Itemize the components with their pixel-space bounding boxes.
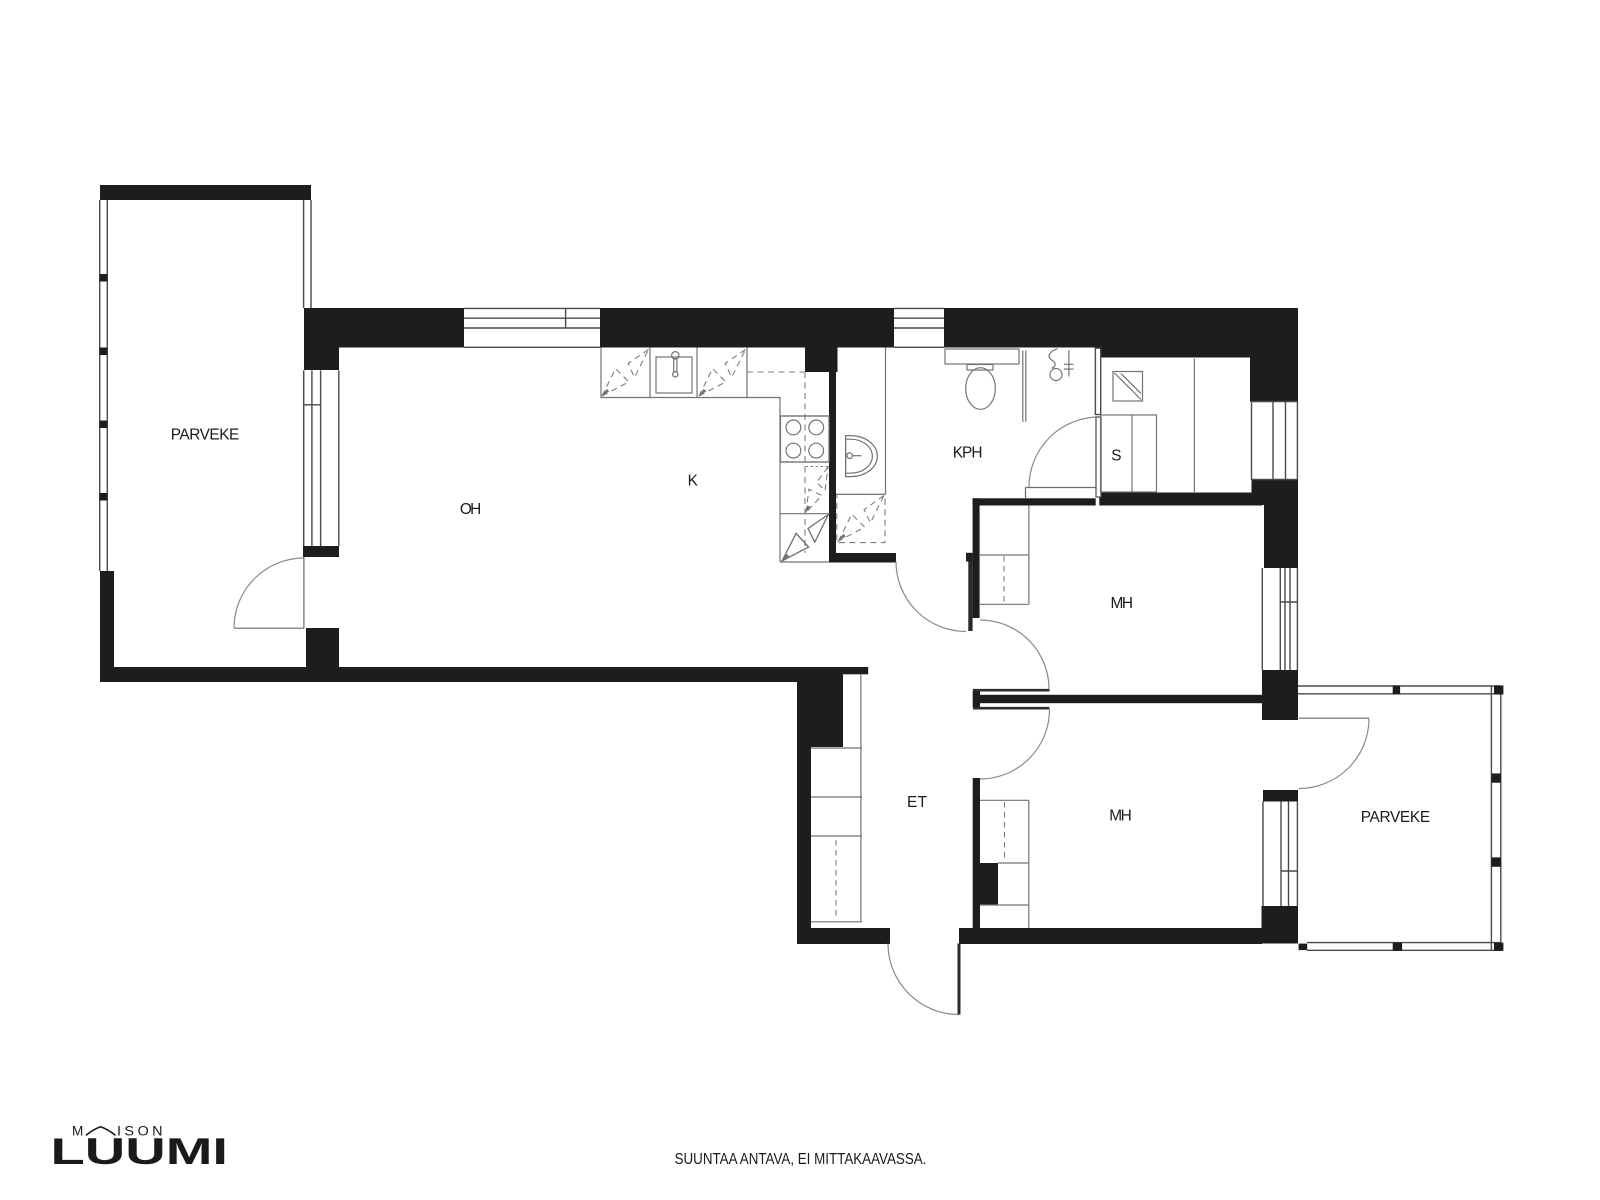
svg-text:KPH: KPH (953, 445, 983, 462)
svg-text:LUUMI: LUUMI (51, 1131, 229, 1172)
svg-text:S: S (1111, 447, 1121, 464)
svg-text:ET: ET (907, 794, 928, 811)
svg-text:SUUNTAA ANTAVA, EI MITTAKAAVAS: SUUNTAA ANTAVA, EI MITTAKAAVASSA. (675, 1151, 927, 1168)
svg-text:OH: OH (460, 501, 481, 518)
svg-text:K: K (688, 472, 699, 489)
svg-text:MH: MH (1111, 595, 1134, 612)
svg-text:PARVEKE: PARVEKE (171, 426, 240, 443)
svg-text:PARVEKE: PARVEKE (1361, 809, 1430, 826)
svg-text:MH: MH (1109, 807, 1132, 824)
